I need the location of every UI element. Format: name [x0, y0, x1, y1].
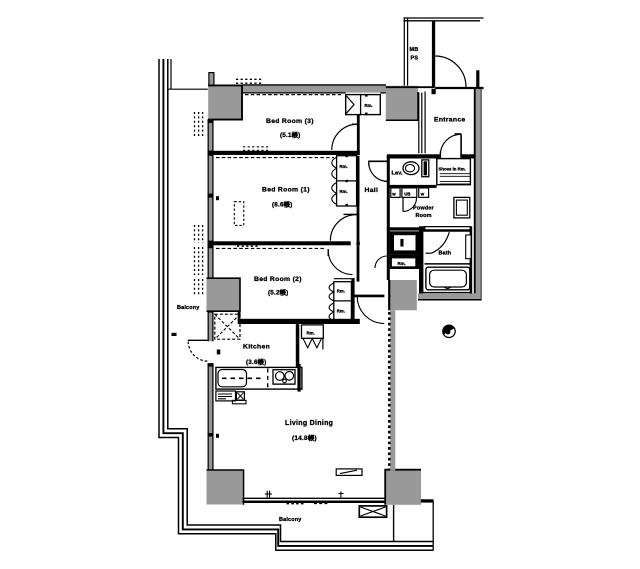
- svg-text:Rm.: Rm.: [337, 289, 345, 294]
- svg-text:Living Dining: Living Dining: [285, 420, 333, 427]
- svg-text:(5.2帳): (5.2帳): [268, 288, 288, 297]
- svg-text:w: w: [391, 191, 396, 196]
- svg-text:Rm.: Rm.: [337, 309, 345, 314]
- svg-text:(3.6帳): (3.6帳): [246, 357, 266, 366]
- svg-text:Rm.: Rm.: [398, 261, 406, 266]
- svg-text:Powder: Powder: [413, 206, 434, 212]
- svg-text:Bed Room (3): Bed Room (3): [266, 118, 314, 125]
- svg-text:Shoes in Rm.: Shoes in Rm.: [439, 167, 466, 172]
- svg-text:Balcony: Balcony: [279, 517, 302, 523]
- svg-text:Lav.: Lav.: [392, 171, 404, 177]
- svg-text:Hall: Hall: [365, 187, 379, 194]
- svg-text:(14.8帳): (14.8帳): [292, 433, 317, 442]
- svg-text:Rm.: Rm.: [307, 331, 315, 336]
- svg-text:Rm.: Rm.: [340, 164, 348, 169]
- svg-text:(5.1帳): (5.1帳): [280, 130, 300, 139]
- svg-text:(8.6帳): (8.6帳): [272, 200, 292, 209]
- svg-text:Kitchen: Kitchen: [243, 344, 270, 351]
- svg-text:w: w: [420, 191, 425, 196]
- svg-text:Bath: Bath: [439, 251, 452, 257]
- svg-text:Bed Room (2): Bed Room (2): [254, 276, 302, 283]
- svg-text:Entrance: Entrance: [434, 117, 466, 124]
- svg-text:Rm.: Rm.: [340, 189, 348, 194]
- svg-text:Rm.: Rm.: [365, 103, 373, 108]
- svg-text:PS: PS: [411, 56, 419, 62]
- svg-text:Bed Room (1): Bed Room (1): [262, 187, 310, 194]
- svg-text:UB: UB: [404, 191, 410, 196]
- svg-text:Balcony: Balcony: [177, 305, 200, 311]
- svg-text:Room: Room: [416, 213, 432, 219]
- svg-text:MB: MB: [410, 47, 419, 53]
